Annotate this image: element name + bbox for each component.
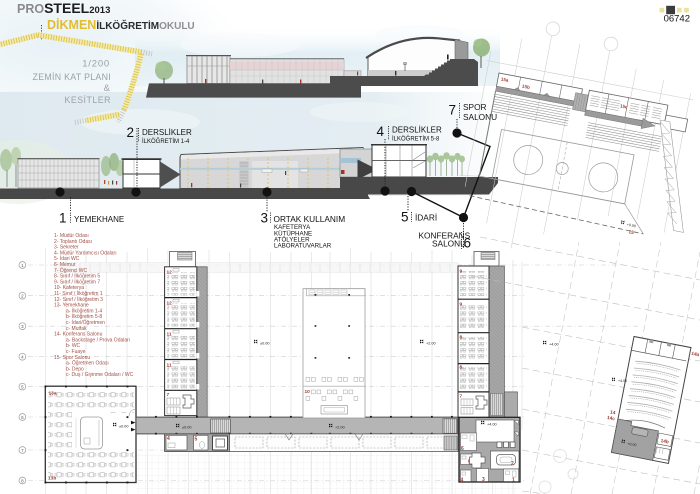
svg-text:+2.00: +2.00 bbox=[426, 342, 436, 346]
svg-text:DERSLİKLER: DERSLİKLER bbox=[392, 126, 442, 135]
svg-text:1: 1 bbox=[59, 211, 67, 226]
svg-text:12: 12 bbox=[167, 301, 173, 307]
svg-text:7: 7 bbox=[460, 394, 463, 400]
svg-text:KESİTLER: KESİTLER bbox=[64, 95, 111, 105]
svg-text:9: 9 bbox=[460, 269, 463, 275]
svg-text:10: 10 bbox=[305, 389, 311, 395]
svg-text:6: 6 bbox=[464, 236, 472, 251]
svg-text:5: 5 bbox=[195, 437, 198, 443]
svg-text:1: 1 bbox=[512, 478, 515, 484]
svg-text:ORTAK KULLANIM: ORTAK KULLANIM bbox=[274, 214, 346, 224]
svg-text:±0.00: ±0.00 bbox=[260, 342, 269, 346]
svg-text:7: 7 bbox=[167, 392, 170, 398]
svg-text:+4.00: +4.00 bbox=[487, 423, 497, 427]
svg-text:4: 4 bbox=[461, 478, 464, 484]
svg-text:06742: 06742 bbox=[664, 14, 690, 25]
svg-text:13b: 13b bbox=[48, 476, 56, 482]
svg-text:+4.00: +4.00 bbox=[549, 343, 559, 347]
svg-text:&: & bbox=[104, 83, 111, 94]
svg-text:9: 9 bbox=[460, 302, 463, 308]
svg-text:YEMEKHANE: YEMEKHANE bbox=[74, 215, 124, 224]
svg-text:7: 7 bbox=[449, 103, 457, 118]
svg-text:5: 5 bbox=[401, 210, 409, 225]
svg-text:ZEMİN KAT PLANI: ZEMİN KAT PLANI bbox=[33, 72, 111, 82]
svg-text:8: 8 bbox=[460, 335, 463, 341]
svg-text:3: 3 bbox=[482, 477, 485, 483]
svg-text:6: 6 bbox=[461, 446, 464, 452]
svg-text:11: 11 bbox=[167, 332, 172, 338]
svg-text:+4.00: +4.00 bbox=[618, 379, 627, 383]
svg-text:4: 4 bbox=[377, 124, 385, 139]
svg-text:İDARİ: İDARİ bbox=[415, 213, 437, 223]
svg-text:c- Duş / Giyinme Odaları / WC: c- Duş / Giyinme Odaları / WC bbox=[66, 372, 134, 378]
svg-text:12: 12 bbox=[167, 270, 173, 276]
svg-text:1/200: 1/200 bbox=[82, 59, 110, 70]
svg-text:SALONU: SALONU bbox=[432, 239, 466, 249]
svg-text:SALONU: SALONU bbox=[463, 112, 497, 122]
svg-text:İLKÖĞRETİM 1-4: İLKÖĞRETİM 1-4 bbox=[142, 138, 190, 145]
svg-text:İLKÖĞRETİM 5-8: İLKÖĞRETİM 5-8 bbox=[392, 136, 440, 143]
svg-text:11: 11 bbox=[167, 363, 172, 369]
svg-text:DERSLİKLER: DERSLİKLER bbox=[142, 128, 192, 137]
svg-text:SPOR: SPOR bbox=[463, 102, 487, 112]
svg-text:±0.00: ±0.00 bbox=[182, 426, 191, 430]
svg-text:+2.00: +2.00 bbox=[335, 426, 345, 430]
svg-text:13a: 13a bbox=[49, 391, 57, 397]
svg-text:LABORATUVARLAR: LABORATUVARLAR bbox=[274, 242, 332, 249]
svg-text:±0.00: ±0.00 bbox=[119, 425, 128, 429]
svg-text:4: 4 bbox=[167, 436, 170, 442]
svg-text:2: 2 bbox=[511, 461, 514, 467]
svg-text:2: 2 bbox=[127, 125, 135, 140]
svg-text:8: 8 bbox=[460, 365, 463, 371]
svg-text:3: 3 bbox=[261, 211, 269, 226]
